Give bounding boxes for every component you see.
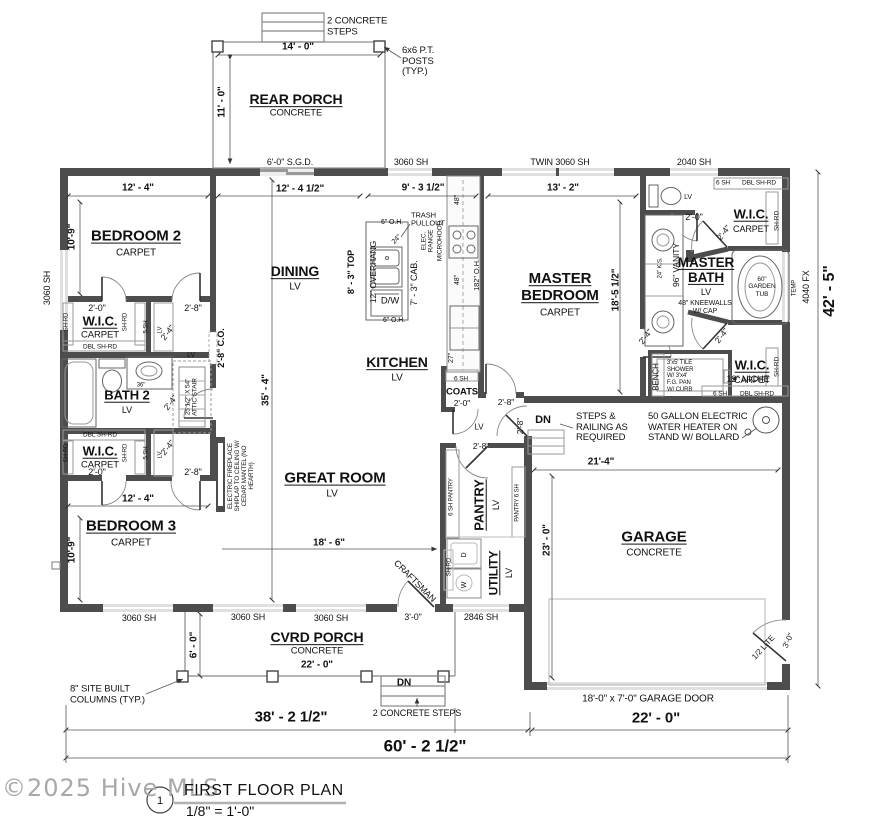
dimension-label: 13' - 2" bbox=[547, 182, 579, 193]
fixture-label-microhood: MICROHOOD bbox=[436, 221, 443, 261]
note-dn-garage: DN bbox=[535, 414, 551, 426]
dimension-label: 35' - 4" bbox=[260, 374, 271, 406]
dimension-label: 12' - 4" bbox=[122, 182, 154, 193]
room-label-bedroom-3: BEDROOM 3 bbox=[86, 519, 176, 536]
fixture-label-dryer: D bbox=[461, 553, 469, 558]
dimension-label: 12' - 4" bbox=[122, 493, 154, 504]
room-label-wic-master-bottom: W.I.C. bbox=[735, 359, 770, 374]
room-label-wic-1: W.I.C. bbox=[83, 315, 118, 330]
dimension-label: 9' - 3 1/2" bbox=[402, 182, 445, 193]
room-label-bath-2: BATH 2 bbox=[104, 389, 149, 404]
note-attic-stair: 25 1/2" X 54" ATTIC STAIR bbox=[185, 378, 200, 416]
dimension-label: 18'-5 1/2" bbox=[610, 269, 621, 312]
window-label: 3060 SH bbox=[314, 613, 348, 623]
dimension-label: 182" O.H. bbox=[473, 259, 481, 291]
note-water-heater: 50 GALLON ELECTRIC WATER HEATER ON STAND… bbox=[648, 412, 748, 444]
material-label: CARPET bbox=[81, 331, 119, 342]
dimension-label: 2'-8" bbox=[498, 398, 514, 408]
dimension-label: 18' - 6" bbox=[313, 537, 345, 548]
window-label: 3060 SH bbox=[231, 612, 265, 622]
dimension-label: 21'-4" bbox=[588, 456, 615, 467]
cabinet-label: 6 SH bbox=[713, 390, 727, 397]
first-floor-plan-sheet: ©2025 Hive MLS FIRST FLOOR PLAN 1/8" = 1… bbox=[0, 0, 872, 823]
dimension-label: 10'-9" bbox=[66, 224, 77, 251]
dimension-label: 24" K.S. bbox=[658, 257, 665, 278]
cabinet-label: SH-RD bbox=[64, 444, 71, 463]
cabinet-label: SH-RD bbox=[123, 313, 130, 332]
room-label-wic-2: W.I.C. bbox=[83, 445, 118, 460]
material-label: CARPET bbox=[540, 307, 580, 318]
material-label: CARPET bbox=[116, 247, 156, 258]
dimension-label: 48" bbox=[454, 195, 462, 205]
sheet-number: 1 bbox=[157, 795, 163, 807]
note-concrete-steps-top: 2 CONCRETE STEPS bbox=[327, 16, 387, 37]
cabinet-label: SH-RD bbox=[123, 444, 130, 463]
window-label: 4040 FX bbox=[801, 270, 811, 303]
dimension-label: 2'-0" bbox=[685, 212, 702, 222]
cabinet-label: DBL SH-RD bbox=[740, 390, 774, 397]
material-label: CONCRETE bbox=[626, 547, 681, 558]
cabinet-label: PANTRY 6 SH bbox=[515, 484, 522, 522]
dimension-label: 22' - 0" bbox=[301, 659, 333, 670]
dimension-label: 3'-0" bbox=[404, 612, 421, 622]
material-label: LV bbox=[684, 194, 692, 202]
cabinet-label: DBL SH-RD bbox=[742, 179, 776, 186]
cabinet-label: 5 SH bbox=[144, 321, 151, 334]
dimension-label: 2'-0" bbox=[88, 467, 105, 477]
dimension-label: 2'-8" bbox=[184, 467, 201, 477]
fixture-label-garden-tub: 60" GARDEN TUB bbox=[748, 276, 775, 298]
cabinet-label: SH-RD bbox=[64, 313, 71, 332]
window-label: 3060 SH bbox=[42, 271, 52, 305]
window-label: 3060 SH bbox=[394, 157, 428, 167]
dimension-label: 2'-8" bbox=[516, 418, 526, 434]
material-label: LV bbox=[391, 372, 402, 383]
room-label-kitchen: KITCHEN bbox=[366, 355, 428, 371]
window-label: 3060 SH bbox=[122, 613, 156, 623]
dimension-label: 23' - 0" bbox=[541, 524, 552, 556]
cabinet-label: DBL SH-RD bbox=[83, 431, 117, 438]
note-tile-shower: 3'x5' TILE SHOWER W/ 3'x4' F.G. PAN W/ C… bbox=[667, 360, 693, 394]
cabinet-label: 5 SH bbox=[144, 447, 151, 460]
cabinet-label: DBL SH-RD bbox=[83, 343, 117, 350]
room-label-utility: UTILITY bbox=[487, 551, 500, 596]
dimension-label: 8' - 3" TOP bbox=[346, 250, 356, 294]
dimension-label: 27" bbox=[448, 353, 456, 363]
dimension-label: 36" bbox=[137, 383, 146, 390]
dimension-label: 6" O.H. bbox=[383, 317, 405, 325]
material-label: LV bbox=[475, 424, 484, 433]
dimension-label: 6' - 0" bbox=[188, 632, 199, 658]
material-label: LV bbox=[701, 287, 711, 297]
room-label-coats: COATS bbox=[446, 388, 478, 399]
dimension-label: 12" OVERHANG bbox=[369, 241, 379, 303]
dimension-label: 7' - 3" CAB. bbox=[409, 260, 419, 305]
note-kneewalls: 48" KNEEWALLS W/ CAP bbox=[678, 300, 731, 316]
cabinet-label: 6 SH PANTRY bbox=[449, 478, 456, 516]
room-label-wic-master-top: W.I.C. bbox=[734, 208, 769, 223]
window-label: TWIN 3060 SH bbox=[530, 157, 589, 167]
dimension-label: 2'-8" bbox=[184, 303, 201, 313]
room-label-pantry: PANTRY bbox=[473, 479, 488, 530]
window-label: 2846 SH bbox=[464, 612, 498, 622]
room-label-cvrd-porch: CVRD PORCH bbox=[270, 630, 363, 646]
room-label-garage: GARAGE bbox=[621, 530, 686, 547]
dimension-label: 11' - 0" bbox=[216, 86, 227, 117]
door-label-garage-door: 18'-0" x 7'-0" GARAGE DOOR bbox=[582, 693, 714, 704]
dimension-label: 12' - 4 1/2" bbox=[276, 183, 324, 194]
note-niche: 12" NICHE bbox=[727, 374, 770, 384]
material-label: CONCRETE bbox=[270, 109, 323, 120]
material-label: CONCRETE bbox=[291, 647, 344, 658]
note-dn-porch: DN bbox=[397, 677, 411, 688]
material-label: LV bbox=[326, 488, 337, 499]
material-label: LV bbox=[122, 405, 132, 415]
room-label-great-room: GREAT ROOM bbox=[284, 471, 385, 488]
note-steps-railing: STEPS & RAILING AS REQUIRED bbox=[576, 412, 628, 444]
note-posts: 6x6 P.T. POSTS (TYP.) bbox=[402, 46, 434, 78]
material-label: LV bbox=[289, 281, 300, 292]
room-label-master-bedroom: MASTER BEDROOM bbox=[521, 271, 599, 305]
dimension-overall: 42' - 5" bbox=[821, 265, 839, 317]
material-label: CARPET bbox=[111, 537, 151, 548]
cabinet-label: SH-RD bbox=[447, 558, 454, 577]
dimension-overall: 38' - 2 1/2" bbox=[255, 710, 328, 727]
dimension-label: 10'-9" bbox=[66, 537, 77, 564]
dimension-label: 2'-8" bbox=[473, 442, 489, 452]
window-label: TEMP bbox=[792, 280, 799, 296]
fixture-label-washer: W bbox=[461, 582, 469, 589]
room-label-master-bath: MASTER BATH bbox=[678, 255, 734, 285]
sheet-title: FIRST FLOOR PLAN bbox=[184, 782, 344, 800]
dimension-label: 2'-0" bbox=[454, 399, 470, 409]
window-label: 6'-0" S.G.D. bbox=[267, 157, 313, 167]
dimension-label: 48" bbox=[454, 275, 462, 285]
room-label-bedroom-2: BEDROOM 2 bbox=[91, 229, 181, 246]
dimension-overall: 22' - 0" bbox=[632, 711, 680, 728]
note-electric-fireplace: ELECTRIC FIREPLACE SHIPLAP TO CEILING W/… bbox=[227, 440, 255, 511]
window-label: 2040 SH bbox=[677, 157, 711, 167]
room-label-rear-porch: REAR PORCH bbox=[249, 92, 342, 108]
material-label: LV bbox=[187, 352, 195, 360]
dimension-label: 2'-0" bbox=[88, 303, 105, 313]
cabinet-label: 6 SH bbox=[716, 179, 730, 186]
fixture-label-bench: BENCH bbox=[653, 363, 662, 391]
dimension-label: 6" O.H. bbox=[381, 219, 403, 227]
cabinet-label: SH-RD bbox=[773, 211, 780, 231]
dimension-label: 2'-8" C.O. bbox=[216, 328, 226, 367]
fixture-label-dishwasher: D/W bbox=[381, 297, 399, 308]
material-label: CARPET bbox=[733, 224, 769, 234]
material-label: LV bbox=[491, 500, 501, 510]
cabinet-label: 6 SH bbox=[454, 375, 468, 382]
material-label: LV bbox=[504, 568, 514, 578]
cabinet-label: SH-RD bbox=[773, 357, 780, 377]
note-concrete-steps-bottom: 2 CONCRETE STEPS bbox=[373, 708, 461, 718]
dimension-label: 14' - 0" bbox=[282, 41, 314, 52]
sheet-scale: 1/8" = 1'-0" bbox=[186, 803, 254, 819]
dimension-overall: 60' - 2 1/2" bbox=[384, 736, 467, 755]
fixture-label-range: ELEC. RANGE bbox=[421, 230, 436, 253]
room-label-dining: DINING bbox=[271, 264, 319, 280]
note-site-built-columns: 8" SITE BUILT COLUMNS (TYP.) bbox=[70, 684, 145, 705]
